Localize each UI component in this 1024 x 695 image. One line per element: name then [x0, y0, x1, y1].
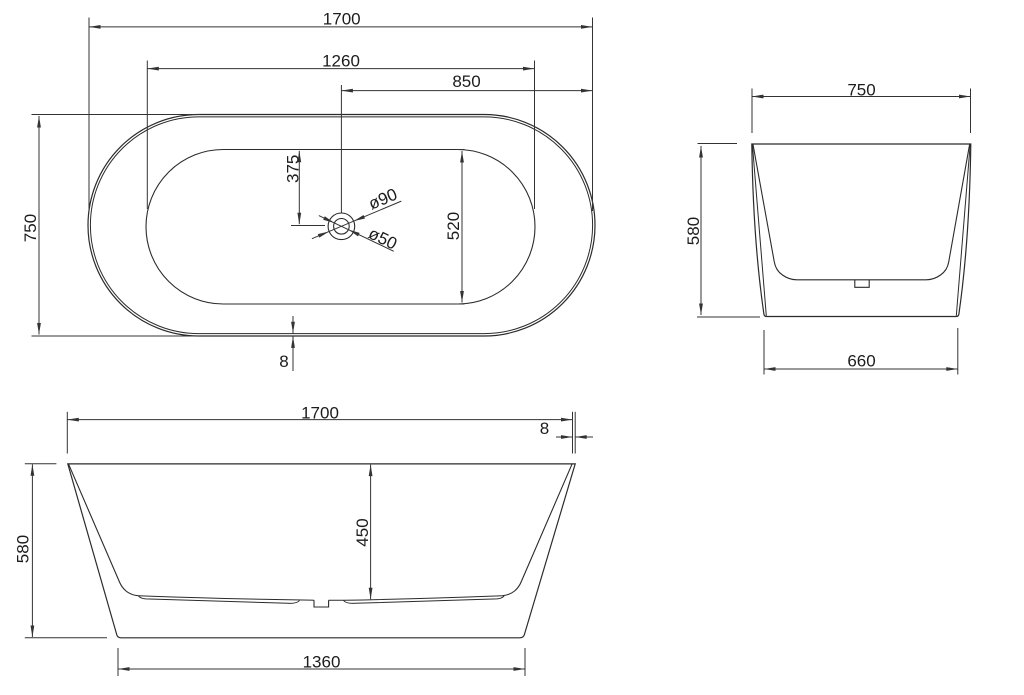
svg-text:450: 450: [353, 518, 372, 546]
svg-text:375: 375: [283, 155, 302, 183]
svg-text:1260: 1260: [322, 51, 360, 70]
svg-text:750: 750: [847, 80, 875, 99]
svg-text:1360: 1360: [303, 652, 341, 671]
svg-text:660: 660: [847, 352, 875, 371]
svg-text:850: 850: [452, 72, 480, 91]
svg-text:8: 8: [540, 419, 549, 438]
svg-text:520: 520: [444, 212, 463, 240]
svg-text:1700: 1700: [301, 403, 339, 422]
svg-text:580: 580: [684, 217, 703, 245]
svg-text:8: 8: [279, 352, 288, 371]
svg-text:1700: 1700: [323, 10, 361, 29]
svg-text:750: 750: [21, 214, 40, 242]
svg-text:580: 580: [14, 535, 33, 563]
